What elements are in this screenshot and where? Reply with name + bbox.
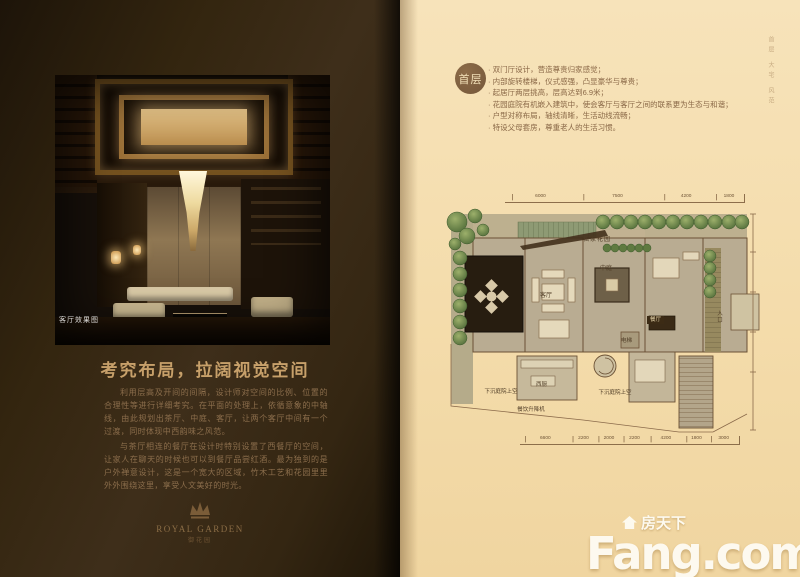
label-private-garden: 私家花园 (583, 234, 611, 243)
crest-icon (187, 500, 213, 522)
dimension-value: 6600 (525, 436, 565, 442)
dimension-value: 3000 (712, 436, 736, 442)
watermark-site-en: Fang.com (586, 533, 798, 575)
floor-badge: 首层 (455, 63, 486, 94)
photo-caption: 客厅效果图 (59, 315, 99, 325)
label-dumbwaiter: 餐饮升降机 (501, 405, 561, 413)
left-page-heading: 考究布局，拉阔视觉空间 (60, 356, 350, 381)
dimension-value: 2200 (624, 436, 645, 442)
dimension-value: 2200 (573, 436, 594, 442)
dark-courtyard (465, 256, 523, 332)
label-living-room: 客厅 (540, 290, 552, 299)
fang-watermark: 房天下 Fang.com (586, 512, 798, 575)
entry-porch (731, 294, 759, 330)
brochure-spread: 客厅效果图 考究布局，拉阔视觉空间 利用层高及开间的间隔，设计师对空间的比例、位… (0, 0, 800, 577)
feature-bullet: 内部旋转楼梯，仪式感强，凸显豪华与尊贵； (488, 76, 768, 88)
label-sunken-courtyard-left: 下沉庭院上空 (471, 387, 531, 395)
dimension-value: 7500 (584, 194, 651, 200)
brand-logo: ROYAL GARDEN 御花园 (140, 500, 260, 544)
dimension-line-top: 6000 7500 4200 1800 (505, 194, 745, 203)
feature-bullet: 起居厅两层挑高，层高达到6.9米； (488, 87, 768, 99)
living-room-photo: 客厅效果图 (55, 75, 330, 345)
left-page: 客厅效果图 考究布局，拉阔视觉空间 利用层高及开间的间隔，设计师对空间的比例、位… (0, 0, 400, 577)
feature-bullet: 户型对称布局，轴线清晰，生活动线流畅； (488, 110, 768, 122)
dimension-value: 4200 (651, 436, 681, 442)
label-dining-room: 餐厅 (647, 316, 664, 324)
label-sunken-courtyard-right: 下沉庭院上空 (585, 388, 645, 396)
feature-bullet: 特设父母套房，尊重老人的生活习惯。 (488, 122, 768, 134)
label-elevator: 电梯 (621, 336, 632, 344)
label-entrance: 入口 (715, 310, 723, 323)
photo-vignette (55, 75, 330, 345)
paragraph: 利用层高及开间的间隔，设计师对空间的比例、位置的合理性等进行详细考究。在平面的处… (104, 386, 328, 438)
feature-bullet: 花园庭院有机嵌入建筑中，使会客厅与客厅之间的联系更为生态与和谐； (488, 99, 768, 111)
dimension-value: 1800 (716, 194, 741, 200)
dimension-value: 6000 (512, 194, 568, 200)
brand-name-en: ROYAL GARDEN (140, 524, 260, 534)
right-page: 首层 双门厅设计，营造尊贵归家感觉； 内部旋转楼梯，仪式感强，凸显豪华与尊贵； … (400, 0, 800, 577)
dimension-value: 2000 (599, 436, 619, 442)
dimension-value: 4200 (665, 194, 708, 200)
left-page-body: 利用层高及开间的间隔，设计师对空间的比例、位置的合理性等进行详细考究。在平面的处… (104, 386, 328, 494)
paragraph: 与茶厅相连的餐厅在设计时特别设置了西餐厅的空间，让家人在聊天的时候也可以到餐厅品… (104, 440, 328, 492)
margin-vertical-note: 首层 大宅 风范 (766, 36, 775, 146)
label-west-kitchen: 西厨 (536, 380, 547, 388)
dimension-line-bottom: 6600 2200 2000 2200 4200 1800 3000 (520, 436, 740, 445)
dimension-value: 1800 (687, 436, 706, 442)
label-atrium: 中庭 (600, 263, 612, 272)
floor-plan: 6000 7500 4200 1800 6600 2200 2000 2200 (443, 192, 765, 454)
brand-name-cn: 御花园 (140, 535, 260, 544)
feature-list: 双门厅设计，营造尊贵归家感觉； 内部旋转楼梯，仪式感强，凸显豪华与尊贵； 起居厅… (488, 64, 768, 133)
floor-plan-drawing (443, 192, 765, 454)
feature-bullet: 双门厅设计，营造尊贵归家感觉； (488, 64, 768, 76)
